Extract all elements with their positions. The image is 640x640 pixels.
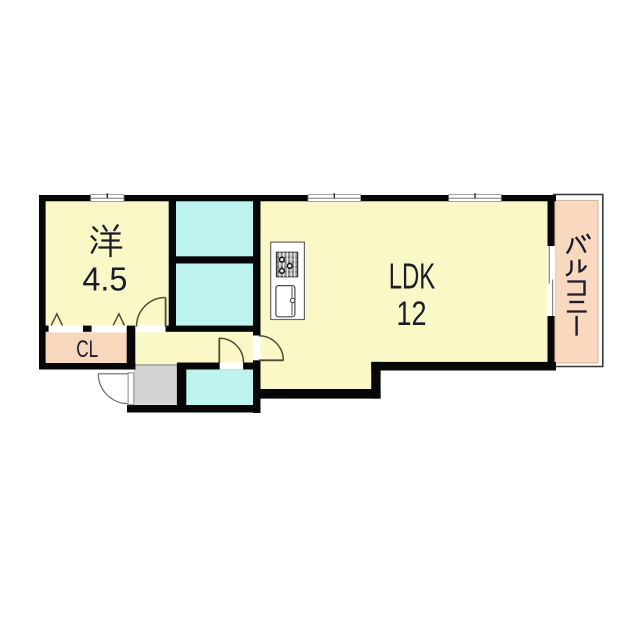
svg-text:4.5: 4.5	[82, 262, 127, 299]
svg-text:CL: CL	[76, 336, 98, 363]
svg-text:LDK: LDK	[389, 255, 436, 296]
svg-text:12: 12	[397, 295, 427, 333]
